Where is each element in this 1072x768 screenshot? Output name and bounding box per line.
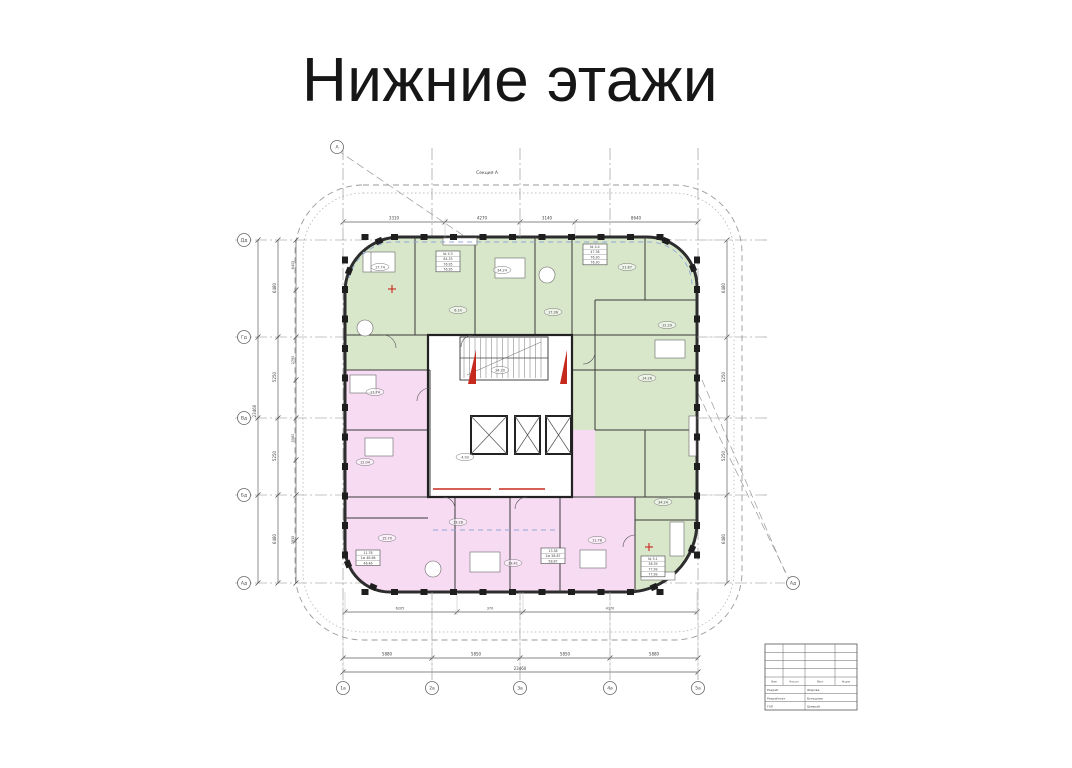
pilaster	[509, 234, 516, 240]
elevators	[471, 416, 571, 454]
stamp-header: № док	[842, 681, 851, 684]
dimension-label: 6405	[291, 261, 295, 270]
dimension-label: 2790	[291, 356, 295, 365]
pilaster	[627, 589, 634, 595]
axis-label: Ад	[241, 581, 247, 587]
stamp-header: Изм	[771, 680, 776, 684]
rect-graphic	[580, 550, 606, 568]
dimension-label: 23460	[252, 404, 257, 417]
pilaster	[342, 463, 348, 470]
axis-label: Бд	[241, 493, 247, 499]
dimension-label: 8640	[631, 216, 642, 221]
circle-graphic	[357, 320, 373, 336]
stat-box-value: 76.95	[443, 262, 452, 266]
pilaster	[694, 345, 700, 352]
dimension-label: 6480	[272, 282, 277, 293]
stat-box-value: 58.87	[548, 559, 557, 563]
stat-box-value: 38.39	[648, 562, 657, 566]
axis-label: Вд	[241, 416, 247, 422]
room-area-label: 14.26	[642, 376, 652, 380]
pilaster	[598, 589, 605, 595]
dimension-label: 5880	[649, 652, 660, 657]
stamp-header: Лист	[817, 680, 824, 684]
pilaster	[450, 234, 457, 240]
room-area-label: 15.70	[382, 536, 392, 540]
rect-graphic	[670, 522, 684, 556]
dimension-label: 5250	[721, 371, 726, 382]
stamp-cell: Жарова	[807, 688, 820, 692]
room-area-label: 11.78	[592, 538, 602, 542]
pilaster	[342, 404, 348, 411]
pilaster	[694, 463, 700, 470]
pilaster	[342, 493, 348, 500]
dimension-label: 23460	[514, 666, 527, 671]
dimension-label: 5250	[721, 450, 726, 461]
pilaster	[627, 234, 634, 240]
stamp-header: Кол.уч	[790, 680, 799, 684]
apartment-zones	[343, 235, 699, 594]
axis-label: Дд	[241, 238, 248, 244]
dimension-label: 5250	[272, 371, 277, 382]
dimension-label: 5850	[471, 652, 482, 657]
dimension-label: 3140	[542, 216, 553, 221]
pilaster	[342, 552, 348, 559]
stat-box-value: № 5.1	[648, 557, 657, 561]
axis-label: 5а	[695, 686, 701, 692]
pilaster	[539, 234, 546, 240]
pilaster	[694, 522, 700, 529]
stat-box-value: 76.30	[590, 255, 599, 259]
axis-label: 3а	[517, 686, 523, 692]
stamp-cell: ГАП	[767, 705, 773, 709]
stat-box-value: 47.36	[590, 250, 599, 254]
stamp-cell: Разработал	[767, 696, 785, 700]
dimension-label: 370	[487, 607, 493, 611]
stamp-cell: Разраб.	[767, 688, 779, 692]
stat-box-value: 11.78	[363, 551, 372, 555]
dimension-label: 3310	[389, 216, 400, 221]
room-area-label: 6.14	[454, 308, 462, 312]
pilaster	[421, 589, 428, 595]
section-label: Секция А	[476, 170, 499, 176]
pilaster	[450, 589, 457, 595]
line-graphic	[702, 380, 785, 572]
room-area-label: 34.24	[658, 500, 668, 504]
pilaster	[342, 257, 348, 264]
room-area-label: 17.74	[370, 390, 380, 394]
stat-box-value: 46.46	[363, 561, 372, 565]
pilaster	[694, 375, 700, 382]
pilaster	[391, 589, 398, 595]
pilaster	[694, 493, 700, 500]
rect-graphic	[443, 238, 477, 245]
room-area-label: 17.74	[375, 265, 385, 269]
circle-graphic	[425, 561, 441, 577]
room-area-label: 13.28	[453, 520, 463, 524]
floor-plan-drawing: 3310427031408640648052505250648023460640…	[215, 120, 875, 740]
pilaster	[539, 589, 546, 595]
stat-box-value: 2ж 58.87	[545, 554, 560, 558]
stamp-cell: Большова	[807, 696, 823, 700]
rect-graphic	[470, 552, 500, 572]
title-block: ИзмКол.учЛист№ докРазраб.ЖароваРазработа…	[765, 644, 857, 710]
dimension-label: 6480	[721, 282, 726, 293]
pilaster	[694, 434, 700, 441]
pilaster	[694, 286, 700, 293]
stat-box-value: № 4.4	[590, 245, 599, 249]
pilaster	[694, 316, 700, 323]
pilaster	[342, 345, 348, 352]
dimension-label: 4170	[606, 607, 615, 611]
dimension-label: 3935	[291, 536, 295, 545]
axis-label: 4а	[607, 686, 613, 692]
stat-box-value: 77.99	[648, 567, 657, 571]
pilaster	[694, 257, 700, 264]
page-title: Нижние этажи	[0, 50, 1020, 112]
pilaster	[391, 234, 398, 240]
axis-label: Ад	[790, 581, 796, 587]
room-area-label: 21.87	[622, 265, 632, 269]
rect-graphic	[345, 497, 635, 592]
pilaster	[421, 234, 428, 240]
room-area-label: 19.41	[508, 561, 518, 565]
room-area-label: 24.20	[495, 368, 505, 372]
stat-box-value: 77.99	[648, 573, 657, 577]
dimension-label: 6205	[396, 607, 405, 611]
dimension-label: 5880	[382, 652, 393, 657]
dimension-label: 5850	[560, 652, 571, 657]
dimension-label: 5580	[291, 434, 295, 443]
pilaster	[568, 589, 575, 595]
room-area-label: 12.29	[662, 323, 672, 327]
pilaster	[694, 552, 700, 559]
dimension-label: 4270	[477, 216, 488, 221]
pilaster	[342, 522, 348, 529]
axis-label: 1а	[340, 686, 346, 692]
pilaster	[694, 404, 700, 411]
circle-graphic	[539, 267, 555, 283]
dimension-label: 6480	[272, 533, 277, 544]
room-area-label: 12.04	[360, 460, 370, 464]
floor-plan: 3310427031408640648052505250648023460640…	[215, 120, 875, 740]
dimension-label: 5250	[272, 450, 277, 461]
pilaster	[342, 434, 348, 441]
pilaster	[342, 316, 348, 323]
room-area-label: 17.36	[548, 310, 558, 314]
rect-graphic	[655, 340, 685, 358]
pilaster	[342, 286, 348, 293]
rect-graphic	[365, 438, 393, 456]
stat-box-value: 84.33	[443, 257, 452, 261]
axis-label: 2а	[429, 686, 435, 692]
room-area-label: 34.24	[497, 268, 507, 272]
pilaster	[342, 375, 348, 382]
stat-box-value: 76.95	[443, 268, 452, 272]
room-area-label: 4.93	[461, 455, 469, 459]
stamp-cell: Шамрай	[807, 705, 820, 709]
stat-box-value: 13.38	[548, 549, 557, 553]
pilaster	[362, 234, 369, 240]
pilaster	[362, 589, 369, 595]
pilaster	[657, 234, 664, 240]
dimension-label: 6480	[721, 533, 726, 544]
stat-box-value: 1ж 46.66	[360, 556, 375, 560]
pilaster	[509, 589, 516, 595]
pilaster	[480, 589, 487, 595]
pilaster	[480, 234, 487, 240]
stat-box-value: № 4.3	[443, 252, 452, 256]
stat-box-value: 76.30	[590, 261, 599, 265]
pilaster	[568, 234, 575, 240]
pilaster	[598, 234, 605, 240]
pilaster	[657, 589, 664, 595]
axis-label: Гд	[241, 335, 247, 341]
